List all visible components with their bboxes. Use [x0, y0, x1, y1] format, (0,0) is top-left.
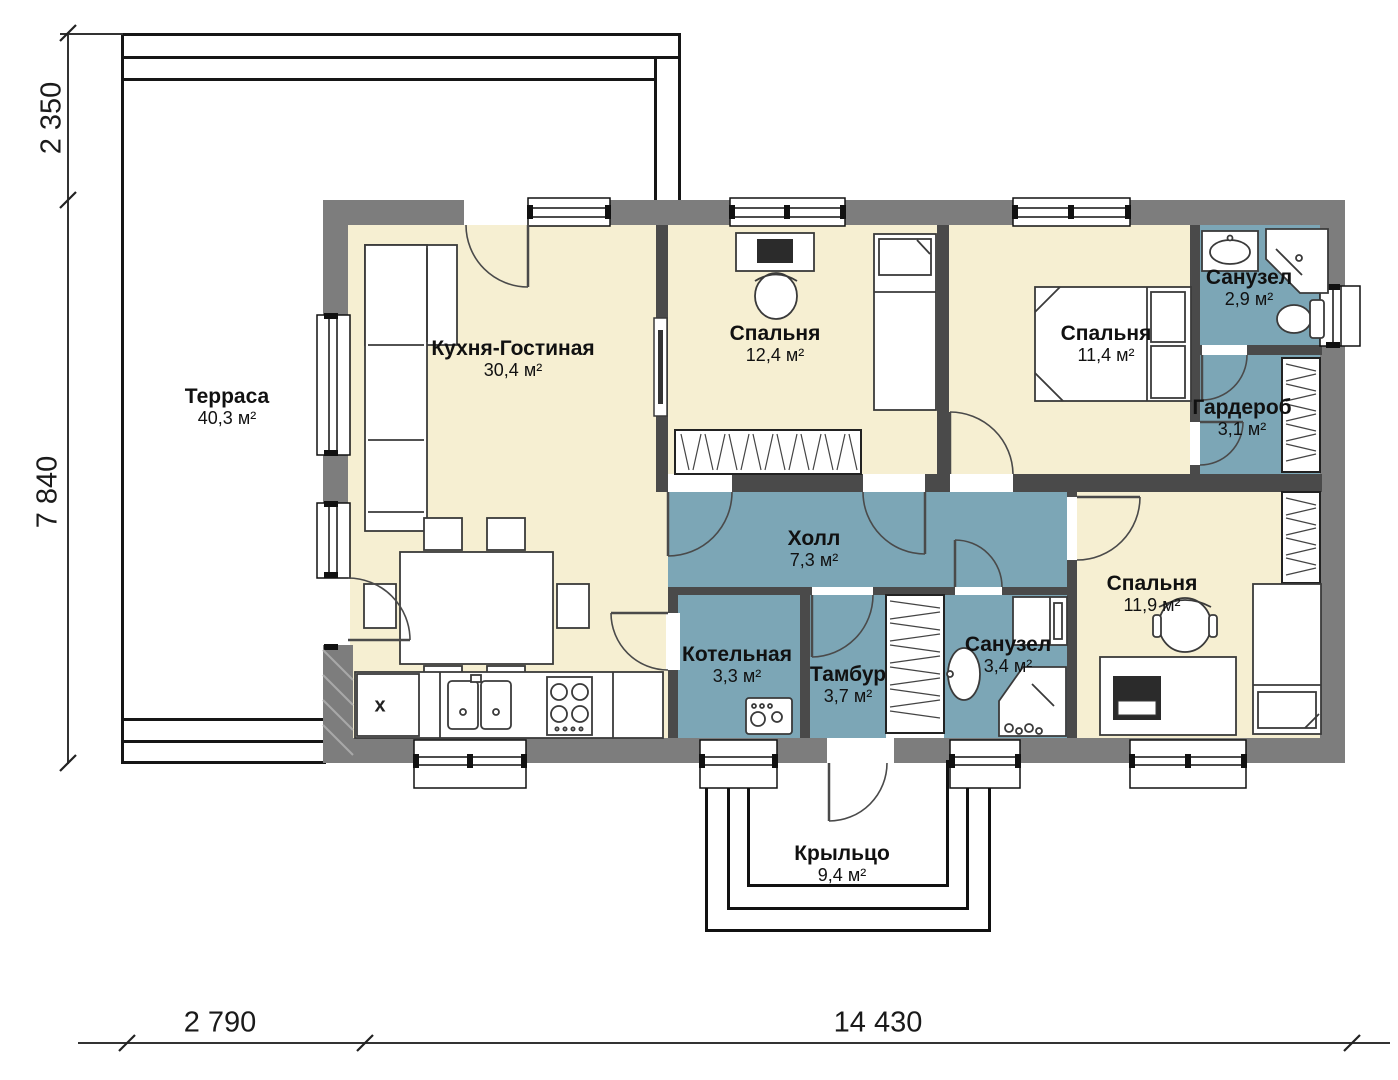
boiler-unit — [746, 698, 792, 734]
room-area: 30,4 м² — [431, 360, 594, 382]
door-hall-living — [668, 492, 732, 556]
room-name: Кухня-Гостиная — [431, 337, 594, 360]
bathroom-master-sink — [1202, 231, 1258, 271]
dimension-ticks — [60, 25, 1360, 1051]
dim-top-left-height: 2 350 — [36, 82, 69, 155]
room-name: Санузел — [1206, 266, 1292, 289]
room-area: 3,1 м² — [1192, 419, 1291, 441]
room-name: Гардероб — [1192, 396, 1291, 419]
dim-left-height: 7 840 — [32, 456, 65, 529]
label-bedroom-small: Спальня 12,4 м² — [730, 322, 821, 367]
room-name: Холл — [788, 527, 841, 550]
plan-overlay — [0, 0, 1398, 1080]
room-area: 12,4 м² — [730, 345, 821, 367]
door-bathroom-master — [1202, 355, 1247, 400]
room-area: 40,3 м² — [185, 408, 269, 430]
desk-bedroom-third — [1100, 657, 1236, 735]
kitchen-cabinet-marker: х — [374, 695, 385, 718]
corner-hatch — [323, 650, 353, 755]
room-name: Терраса — [185, 385, 269, 408]
room-area: 2,9 м² — [1206, 289, 1292, 311]
label-wardrobe: Гардероб 3,1 м² — [1192, 396, 1291, 441]
door-entrance-terrace — [466, 225, 528, 287]
room-area: 7,3 м² — [788, 550, 841, 572]
dim-bottom-main-width: 14 430 — [834, 1007, 923, 1040]
windows-top — [528, 198, 1130, 226]
windows-left — [317, 315, 350, 578]
room-name: Котельная — [682, 643, 792, 666]
label-bathroom-guest: Санузел 3,4 м² — [965, 633, 1051, 678]
door-vestibule — [812, 595, 873, 657]
window-right-vent — [1320, 286, 1360, 346]
label-porch: Крыльцо 9,4 м² — [794, 842, 890, 887]
room-area: 11,4 м² — [1061, 345, 1152, 367]
label-kitchen-living: Кухня-Гостиная 30,4 м² — [431, 337, 594, 382]
room-area: 11,9 м² — [1107, 595, 1198, 617]
room-name: Спальня — [1061, 322, 1152, 345]
room-name: Крыльцо — [794, 842, 890, 865]
desk-bedroom-small — [736, 233, 814, 271]
door-bathroom-guest — [955, 540, 1002, 587]
room-name: Санузел — [965, 633, 1051, 656]
door-bedroom-small — [863, 492, 925, 554]
closet-bedroom-small — [675, 430, 861, 474]
room-name: Тамбур — [810, 663, 886, 686]
closet-bedroom-third — [1282, 492, 1320, 583]
room-area: 9,4 м² — [794, 865, 890, 887]
label-bathroom-master: Санузел 2,9 м² — [1206, 266, 1292, 311]
door-bedroom-third — [1077, 497, 1140, 560]
label-bedroom-third: Спальня 11,9 м² — [1107, 572, 1198, 617]
label-bedroom-master: Спальня 11,4 м² — [1061, 322, 1152, 367]
label-vestibule: Тамбур 3,7 м² — [810, 663, 886, 708]
sofa — [365, 245, 457, 531]
room-area: 3,4 м² — [965, 656, 1051, 678]
kitchen-stove — [547, 677, 592, 735]
room-area: 3,7 м² — [810, 686, 886, 708]
room-name: Спальня — [1107, 572, 1198, 595]
chair-bedroom-small — [755, 273, 797, 319]
label-boiler: Котельная 3,3 м² — [682, 643, 792, 688]
label-hall: Холл 7,3 м² — [788, 527, 841, 572]
room-area: 3,3 м² — [682, 666, 792, 688]
door-boiler — [611, 613, 668, 670]
bed-single-third — [1253, 584, 1321, 734]
room-name: Спальня — [730, 322, 821, 345]
tv-panel — [654, 318, 667, 416]
door-bedroom-master — [950, 412, 1013, 474]
dining-table — [364, 518, 589, 698]
dim-bottom-left-width: 2 790 — [184, 1007, 257, 1040]
bed-single-small — [874, 234, 936, 410]
label-terrace: Терраса 40,3 м² — [185, 385, 269, 430]
floor-plan: Терраса 40,3 м² Кухня-Гостиная 30,4 м² С… — [0, 0, 1398, 1080]
door-porch — [829, 763, 887, 821]
